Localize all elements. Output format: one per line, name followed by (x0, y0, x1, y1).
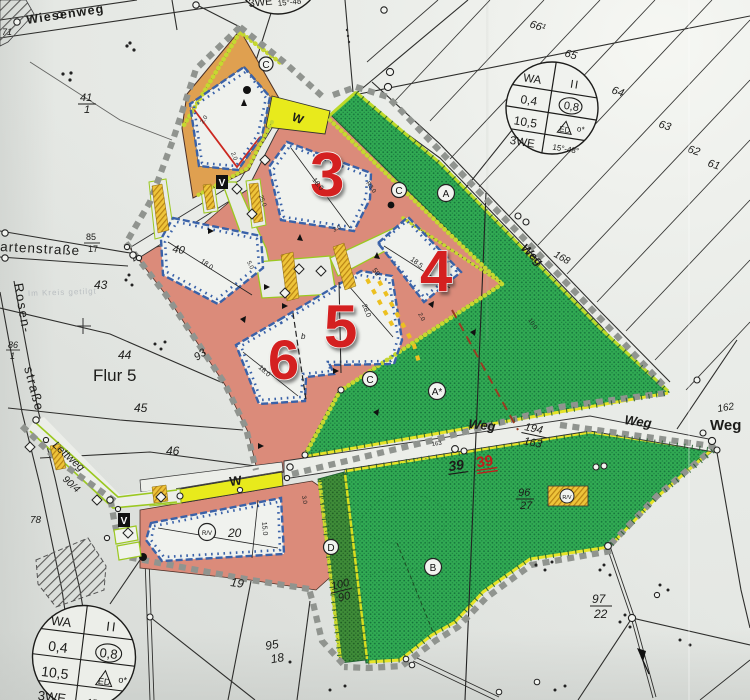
svg-text:C: C (366, 375, 373, 386)
svg-text:II: II (569, 79, 580, 92)
svg-text:85: 85 (86, 232, 96, 242)
svg-text:45: 45 (134, 401, 148, 415)
svg-text:97: 97 (592, 592, 607, 606)
svg-text:96: 96 (518, 487, 531, 499)
svg-text:II: II (105, 619, 118, 635)
svg-text:V: V (219, 178, 226, 189)
svg-text:44: 44 (118, 348, 132, 362)
svg-text:41: 41 (80, 92, 92, 104)
svg-text:17: 17 (88, 244, 98, 254)
svg-text:20: 20 (227, 526, 242, 540)
svg-text:C: C (395, 186, 402, 197)
svg-text:V: V (121, 516, 128, 527)
svg-text:1: 1 (84, 104, 90, 116)
svg-text:B: B (430, 563, 437, 574)
svg-text:o*: o* (118, 674, 128, 685)
svg-text:39: 39 (447, 456, 465, 474)
svg-text:86: 86 (8, 340, 18, 350)
svg-text:D: D (327, 543, 334, 554)
svg-text:0,4: 0,4 (47, 638, 68, 656)
svg-text:ED: ED (559, 124, 572, 135)
svg-text:Flur 5: Flur 5 (93, 366, 136, 385)
svg-text:WA: WA (50, 613, 72, 630)
svg-text:Weg: Weg (710, 417, 741, 434)
svg-text:0,8: 0,8 (563, 100, 580, 114)
svg-text:18: 18 (269, 650, 285, 666)
svg-text:78: 78 (30, 515, 42, 526)
svg-text:b: b (301, 332, 306, 341)
svg-text:R/V: R/V (202, 531, 212, 537)
svg-text:15.0: 15.0 (260, 522, 268, 536)
svg-text:6: 6 (268, 328, 299, 391)
svg-text:10,5: 10,5 (40, 663, 69, 682)
svg-text:3: 3 (310, 141, 344, 210)
svg-text:A*: A* (432, 387, 443, 398)
svg-text:22: 22 (593, 607, 608, 621)
svg-text:C: C (262, 60, 269, 71)
svg-text:43: 43 (94, 278, 108, 292)
svg-text:ED: ED (97, 676, 111, 688)
svg-text:Weg: Weg (468, 416, 497, 434)
svg-text:R/V: R/V (562, 495, 572, 501)
svg-text:A: A (443, 189, 450, 200)
svg-text:19: 19 (230, 575, 245, 591)
svg-text:1: 1 (10, 351, 15, 361)
svg-text:4: 4 (420, 239, 452, 304)
svg-text:0,8: 0,8 (99, 645, 119, 662)
svg-text:46: 46 (166, 444, 180, 458)
svg-text:5: 5 (324, 293, 357, 360)
svg-text:71: 71 (2, 27, 12, 37)
svg-text:o*: o* (576, 124, 585, 134)
svg-text:0,4: 0,4 (520, 92, 539, 108)
svg-text:27: 27 (519, 500, 533, 512)
